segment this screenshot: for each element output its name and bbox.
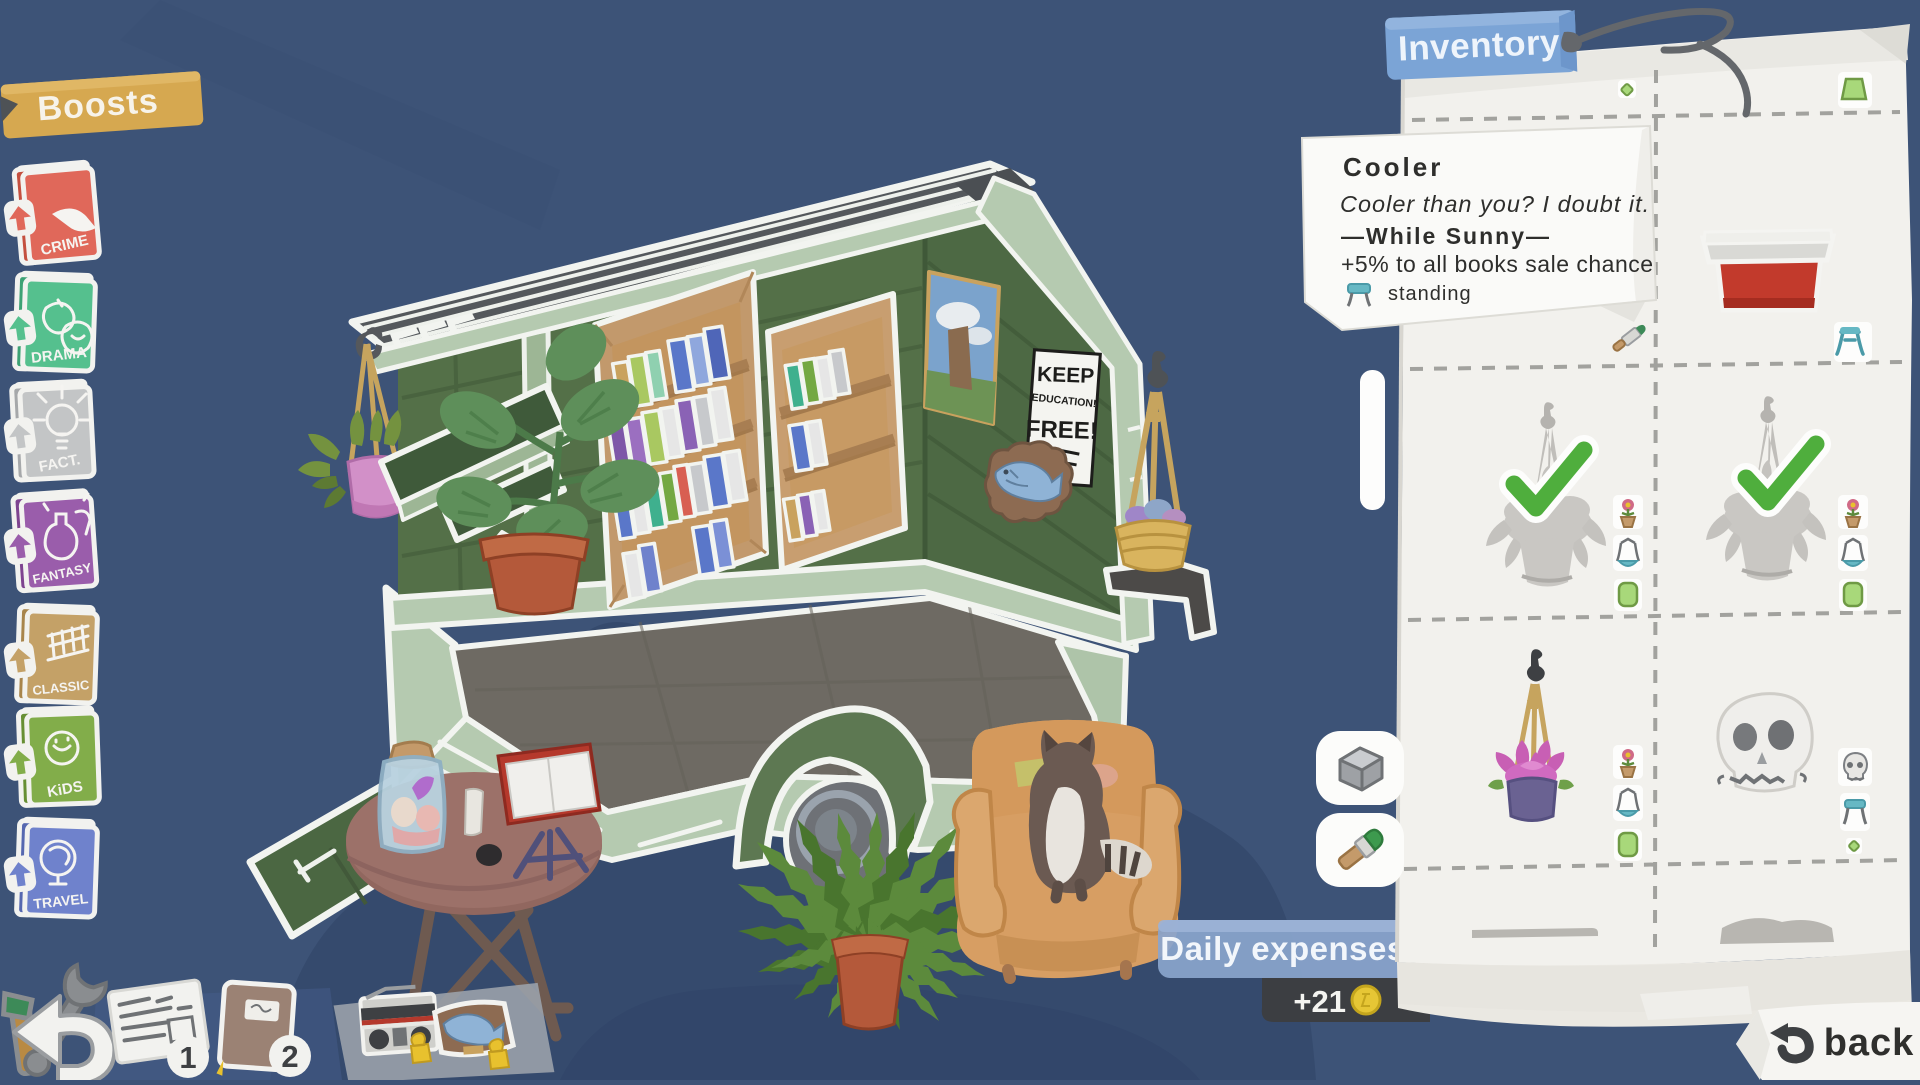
svg-text:+5% to all books sale chance: +5% to all books sale chance <box>1341 251 1654 277</box>
svg-text:KEEP: KEEP <box>1037 363 1095 388</box>
svg-text:Cooler: Cooler <box>1343 152 1443 182</box>
svg-text:Daily expenses: Daily expenses <box>1160 930 1405 967</box>
svg-text:Cooler than you? I doubt it.: Cooler than you? I doubt it. <box>1340 191 1650 217</box>
svg-text:+21: +21 <box>1293 984 1346 1019</box>
svg-text:standing: standing <box>1388 283 1472 305</box>
svg-text:1: 1 <box>179 1040 196 1075</box>
svg-text:Inventory: Inventory <box>1397 23 1561 69</box>
svg-text:—While Sunny—: —While Sunny— <box>1341 223 1551 249</box>
svg-text:2: 2 <box>281 1039 298 1074</box>
svg-text:back: back <box>1824 1022 1915 1064</box>
